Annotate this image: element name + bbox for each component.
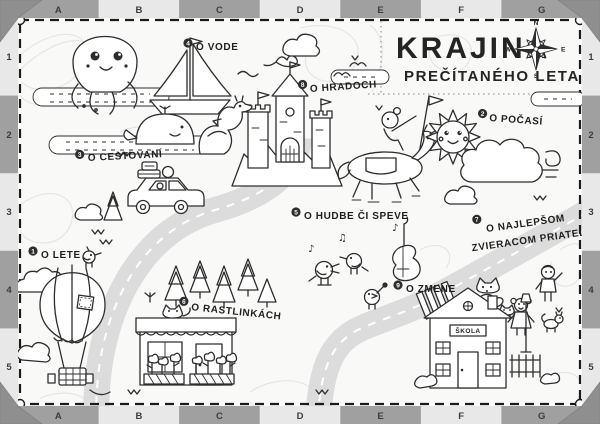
grid-column-label: A [55,5,62,16]
grid-column-label: E [377,5,383,16]
svg-text:5: 5 [294,209,298,216]
grid-row-label: 2 [6,130,11,141]
grid-column-label: C [216,411,223,422]
grid-column-label: F [458,5,464,16]
compass-n: N [534,20,539,27]
grid-row-label: 5 [6,362,12,373]
grid-row-label: 4 [588,285,594,296]
compass-e: E [561,47,566,54]
music-note-icon: ♪ [308,244,314,255]
school-sign: ŠKOLA [455,326,480,335]
svg-text:1: 1 [31,248,35,255]
grid-column-label: B [135,411,142,422]
grid-column-label: F [458,411,464,422]
grid-column-label: E [377,411,383,422]
compass-s: S [534,73,539,80]
grid-column-label: D [297,411,304,422]
map-canvas: ♪ ♫ ♪ [0,0,600,424]
grid-row-label: 3 [6,207,11,218]
grid-row-label: 5 [588,362,594,373]
svg-text:4: 4 [186,40,190,47]
grid-row-label: 2 [588,130,593,141]
title-line-2: PREČÍTANÉHO LETA [404,67,580,85]
grid-row-label: 4 [6,285,12,296]
grid-column-label: G [538,411,545,422]
coloring-map-page: ♪ ♫ ♪ [0,0,600,424]
svg-text:O ZMENE: O ZMENE [406,284,456,295]
grid-row-label: 3 [588,207,593,218]
grid-column-label: B [135,5,142,16]
svg-text:O HUDBE ČI SPEVE: O HUDBE ČI SPEVE [304,209,409,222]
compass-w: W [505,47,512,54]
svg-text:9: 9 [396,282,400,289]
grid-row-label: 1 [6,52,12,63]
grid-row-label: 1 [588,52,594,63]
music-note-icon: ♪ [392,223,398,234]
music-note-icon: ♫ [338,233,347,244]
grid-column-label: C [216,5,223,16]
svg-text:O VODE: O VODE [196,42,239,53]
grid-column-label: A [55,411,62,422]
grid-column-label: G [538,5,545,16]
svg-text:O LETE: O LETE [41,250,81,261]
grid-column-label: D [297,5,304,16]
